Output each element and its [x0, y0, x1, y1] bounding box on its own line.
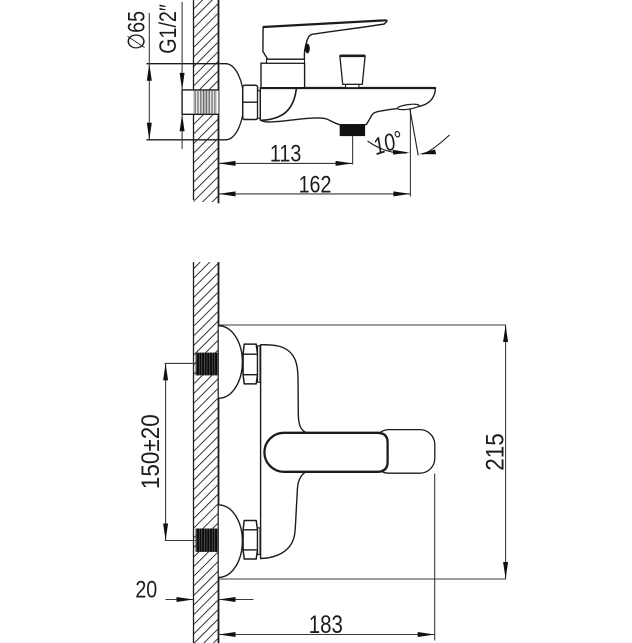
- svg-text:113: 113: [270, 139, 301, 166]
- svg-text:183: 183: [309, 610, 343, 638]
- svg-text:∅65: ∅65: [123, 11, 150, 50]
- svg-text:G1/2″: G1/2″: [154, 4, 181, 54]
- svg-text:20: 20: [135, 576, 157, 603]
- svg-text:150±20: 150±20: [137, 414, 165, 489]
- svg-text:215: 215: [481, 433, 509, 471]
- svg-text:162: 162: [299, 170, 332, 197]
